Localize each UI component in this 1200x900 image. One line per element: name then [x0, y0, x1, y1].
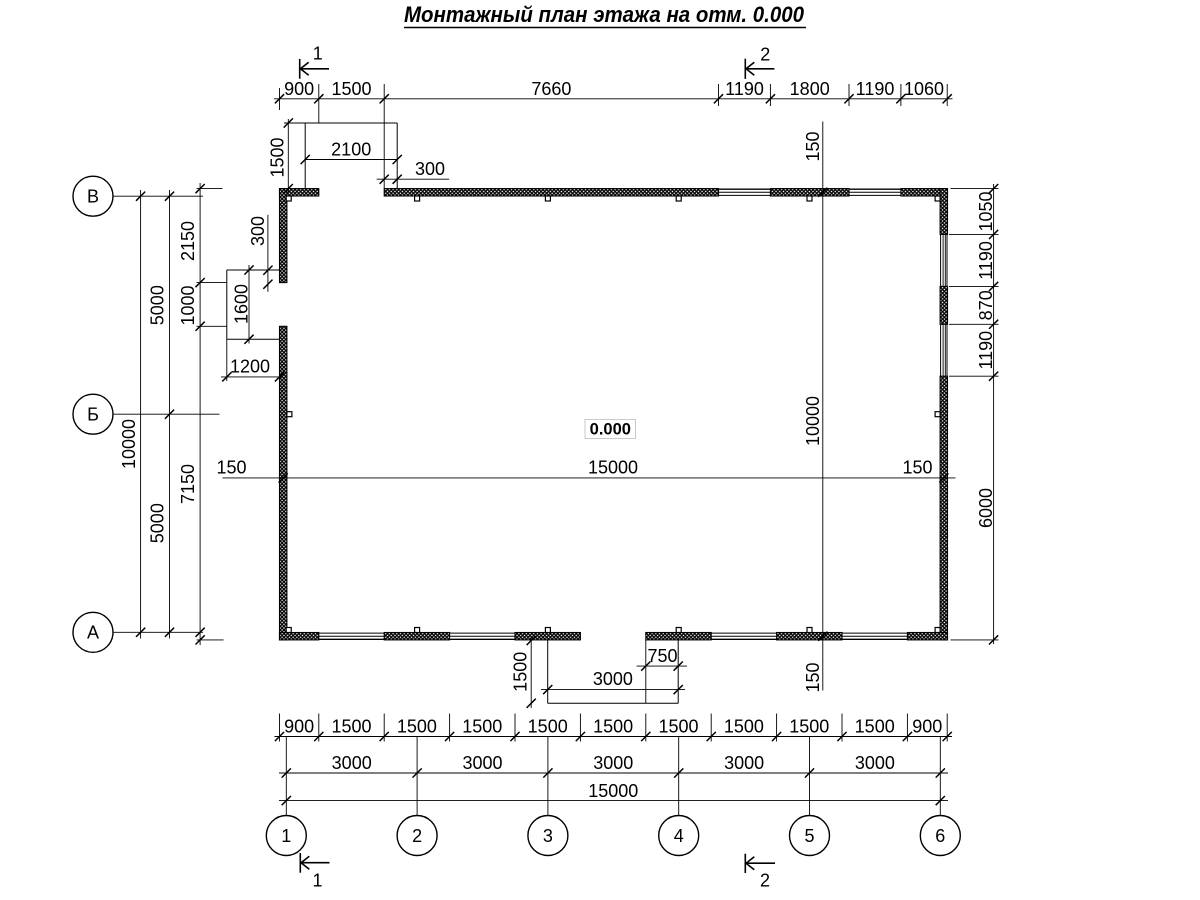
svg-text:870: 870 — [976, 290, 996, 320]
svg-text:300: 300 — [415, 159, 445, 179]
svg-text:900: 900 — [912, 717, 942, 737]
svg-text:1500: 1500 — [331, 717, 371, 737]
svg-text:1050: 1050 — [976, 191, 996, 231]
svg-text:1: 1 — [281, 826, 291, 846]
svg-text:900: 900 — [284, 717, 314, 737]
svg-text:150: 150 — [803, 131, 823, 161]
svg-text:5000: 5000 — [148, 503, 168, 543]
svg-text:2: 2 — [760, 871, 770, 891]
svg-text:В: В — [87, 187, 99, 207]
svg-text:1: 1 — [313, 44, 323, 64]
svg-text:1500: 1500 — [511, 652, 531, 692]
svg-text:7660: 7660 — [531, 79, 571, 99]
svg-text:1800: 1800 — [790, 79, 830, 99]
svg-text:1500: 1500 — [331, 79, 371, 99]
svg-text:3000: 3000 — [724, 753, 764, 773]
svg-text:3000: 3000 — [332, 753, 372, 773]
svg-text:15000: 15000 — [588, 781, 638, 801]
svg-text:А: А — [87, 623, 99, 643]
svg-text:5: 5 — [804, 826, 814, 846]
svg-text:1500: 1500 — [397, 717, 437, 737]
svg-text:Монтажный план этажа на отм. 0: Монтажный план этажа на отм. 0.000 — [404, 2, 805, 27]
svg-text:5000: 5000 — [148, 285, 168, 325]
svg-text:10000: 10000 — [803, 396, 823, 446]
svg-text:1190: 1190 — [856, 79, 895, 99]
svg-text:1190: 1190 — [725, 79, 764, 99]
svg-text:750: 750 — [647, 646, 677, 666]
svg-text:10000: 10000 — [119, 419, 139, 469]
svg-text:4: 4 — [674, 826, 684, 846]
svg-text:3: 3 — [543, 826, 553, 846]
svg-text:1500: 1500 — [724, 717, 764, 737]
svg-text:300: 300 — [248, 216, 268, 246]
svg-text:15000: 15000 — [588, 458, 638, 478]
svg-text:6000: 6000 — [976, 488, 996, 528]
svg-text:1: 1 — [312, 871, 322, 891]
svg-text:0.000: 0.000 — [590, 420, 631, 438]
svg-text:1500: 1500 — [268, 137, 288, 177]
svg-text:1060: 1060 — [904, 79, 944, 99]
svg-text:150: 150 — [216, 458, 246, 478]
svg-text:2150: 2150 — [178, 221, 198, 261]
svg-text:7150: 7150 — [178, 464, 198, 504]
svg-text:150: 150 — [803, 662, 823, 692]
svg-text:2: 2 — [412, 826, 422, 846]
svg-text:2: 2 — [760, 44, 770, 64]
svg-text:Б: Б — [87, 405, 99, 425]
svg-text:1190: 1190 — [976, 331, 996, 370]
svg-text:1190: 1190 — [976, 241, 996, 280]
svg-text:3000: 3000 — [462, 753, 502, 773]
svg-text:1500: 1500 — [593, 717, 633, 737]
svg-text:1600: 1600 — [231, 284, 251, 324]
svg-text:3000: 3000 — [593, 669, 633, 689]
svg-text:3000: 3000 — [855, 753, 895, 773]
svg-text:3000: 3000 — [593, 753, 633, 773]
svg-text:1500: 1500 — [855, 717, 895, 737]
svg-text:900: 900 — [284, 79, 314, 99]
svg-text:1000: 1000 — [178, 285, 198, 325]
svg-text:1500: 1500 — [462, 717, 502, 737]
svg-text:2100: 2100 — [331, 140, 371, 160]
svg-text:150: 150 — [902, 458, 932, 478]
svg-text:1200: 1200 — [230, 356, 270, 376]
svg-text:1500: 1500 — [789, 717, 829, 737]
svg-text:1500: 1500 — [528, 717, 568, 737]
svg-text:1500: 1500 — [658, 717, 698, 737]
svg-text:6: 6 — [935, 826, 945, 846]
